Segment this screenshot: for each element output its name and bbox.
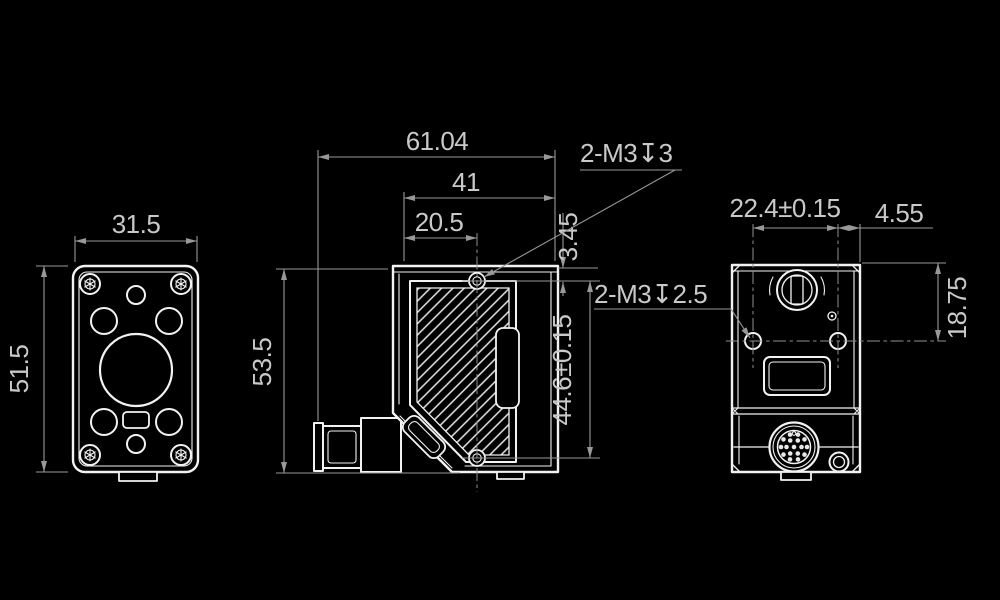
dimension-drawing: 31.5 51.5 53.5 61.04 41 20.5 3.45 44.6±0… (0, 0, 1000, 600)
callout-thread-top-label: 2-M3↧3 (580, 138, 673, 168)
dim-side-hole-top-gap-label: 3.45 (553, 213, 583, 262)
m12-connector (770, 423, 819, 472)
dim-rear-hole-spacing-label: 22.4±0.15 (730, 193, 841, 223)
dimension-front-height: 51.5 (4, 266, 68, 472)
side-connector-mount (361, 418, 401, 472)
side-connector-flange (314, 423, 323, 471)
rear-view (726, 224, 946, 480)
front-body-outline (73, 266, 198, 472)
dim-side-upper-width-label: 41 (452, 167, 480, 197)
callout-thread-rear-label: 2-M3↧2.5 (594, 279, 707, 309)
dimension-rear-hole-edge-gap: 4.55 (838, 198, 933, 262)
dim-side-hole-spacing-label: 44.6±0.15 (547, 314, 577, 425)
dim-front-height-label: 51.5 (4, 345, 34, 394)
dimension-front-width: 31.5 (75, 209, 197, 262)
dim-side-height-label: 53.5 (247, 338, 277, 387)
side-view (314, 233, 558, 492)
side-bottom-foot (497, 472, 524, 479)
dim-rear-top-to-center-label: 18.75 (942, 277, 972, 340)
torx-screw-top-right (171, 274, 191, 294)
callout-thread-rear: 2-M3↧2.5 (594, 279, 750, 338)
dim-side-total-width-label: 61.04 (406, 126, 469, 156)
dimension-rear-hole-spacing: 22.4±0.15 (730, 193, 841, 228)
rear-aux-connector (830, 453, 849, 472)
dimension-side-hole-offset: 20.5 (404, 207, 477, 238)
dim-rear-hole-edge-gap-label: 4.55 (875, 198, 924, 228)
front-bottom-tab (119, 472, 157, 481)
callout-thread-top: 2-M3↧3 (484, 138, 682, 277)
dim-side-hole-offset-label: 20.5 (415, 207, 464, 237)
torx-screw-bottom-right (171, 445, 191, 465)
torx-screw-top-left (80, 274, 100, 294)
side-window-recess (496, 328, 519, 408)
rear-bottom-tab (781, 472, 811, 480)
front-view (73, 266, 198, 481)
dimension-rear-top-to-center: 18.75 (862, 263, 972, 341)
torx-screw-bottom-left (80, 445, 100, 465)
dim-front-width-label: 31.5 (112, 209, 161, 239)
